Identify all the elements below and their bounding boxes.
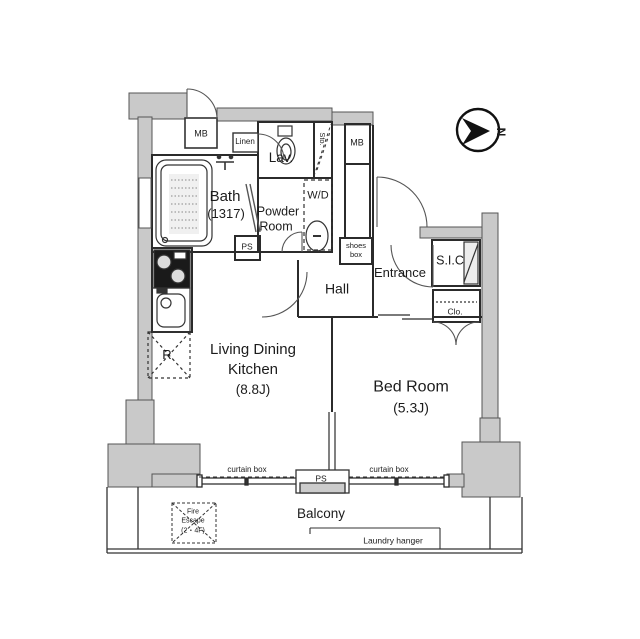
- label-meter-box-right: MB: [350, 138, 364, 147]
- label-bedroom-size: (5.3J): [393, 401, 429, 416]
- label-meter-box-left: MB: [194, 129, 208, 138]
- stove-icon: [154, 250, 190, 288]
- closet-double-doors: [433, 322, 479, 345]
- label-pipe-space-bottom: PS: [315, 475, 326, 484]
- label-bath: Bath: [210, 189, 241, 205]
- label-entrance: Entrance: [374, 266, 426, 280]
- label-bedroom: Bed Room: [373, 380, 449, 397]
- label-closet: Clo.: [447, 308, 462, 317]
- ldk-door: [262, 272, 307, 317]
- label-lavatory: Lav.: [269, 151, 294, 165]
- label-laundry-hanger: Laundry hanger: [363, 537, 423, 546]
- label-fire-escape-3: (2・4F): [181, 527, 205, 534]
- label-shoes-box-2: box: [350, 251, 362, 259]
- bathtub-icon: [156, 160, 212, 246]
- label-shoes-box-1: shoes: [346, 242, 366, 250]
- label-sic: S.I.C: [436, 255, 464, 268]
- label-refrigerator: R: [162, 348, 171, 362]
- label-balcony: Balcony: [297, 507, 345, 521]
- sic-hatch: [464, 242, 478, 284]
- label-compass-north: N: [495, 128, 507, 137]
- label-washer-dryer: W/D: [307, 190, 328, 201]
- label-bath-size: (1317): [207, 207, 245, 221]
- label-ldk-size: (8.8J): [236, 383, 271, 397]
- label-storage: Sto.: [318, 132, 326, 145]
- label-fire-escape-1: Fire: [187, 508, 199, 515]
- label-powder-room-1: Powder: [257, 206, 299, 219]
- label-powder-room-2: Room: [259, 221, 292, 234]
- floor-plan-page: Bath (1317) Powder Room Lav. Linen Sto. …: [0, 0, 640, 639]
- label-ldk-1: Living Dining: [210, 342, 296, 358]
- label-hall: Hall: [325, 282, 349, 297]
- mb-door: [187, 89, 217, 119]
- floorplan-drawing: [0, 0, 640, 639]
- label-pipe-space-top: PS: [241, 243, 252, 252]
- label-fire-escape-2: Escape: [181, 517, 204, 524]
- compass-icon: [457, 109, 499, 151]
- label-curtain-box-left: curtain box: [227, 466, 266, 474]
- label-linen: Linen: [235, 138, 255, 146]
- label-ldk-2: Kitchen: [228, 362, 278, 378]
- front-door: [377, 177, 427, 227]
- label-curtain-box-right: curtain box: [369, 466, 408, 474]
- bath-faucet-icon: [216, 156, 234, 171]
- powder-room-door: [282, 232, 302, 252]
- kitchen-sink-icon: [152, 288, 190, 332]
